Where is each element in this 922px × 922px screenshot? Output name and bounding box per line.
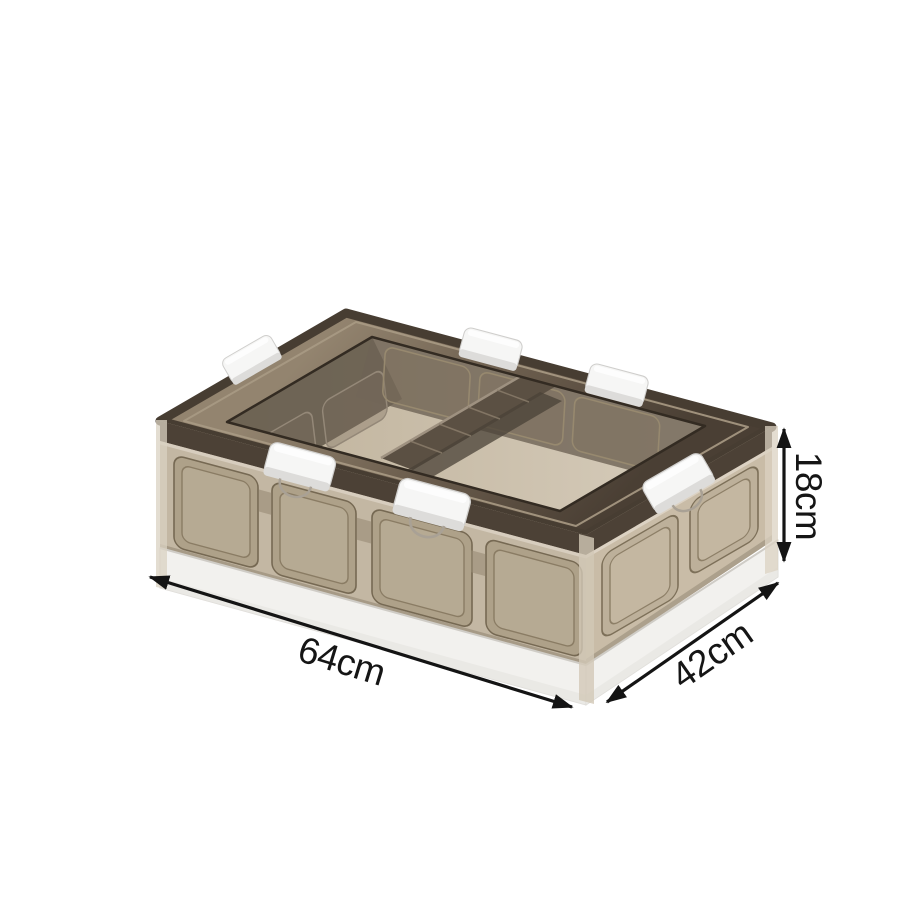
- corner-post: [156, 420, 167, 589]
- product-photo: 64cm 42cm 18cm: [0, 0, 922, 922]
- hinge-mark: [357, 518, 371, 544]
- corner-post: [765, 426, 778, 574]
- height-label: 18cm: [788, 452, 829, 540]
- hinge-mark: [259, 489, 271, 514]
- product-image-canvas: 64cm 42cm 18cm: [0, 0, 922, 922]
- dimension-height: 18cm: [784, 429, 829, 561]
- hinge-mark: [471, 550, 485, 576]
- corner-post: [579, 534, 594, 704]
